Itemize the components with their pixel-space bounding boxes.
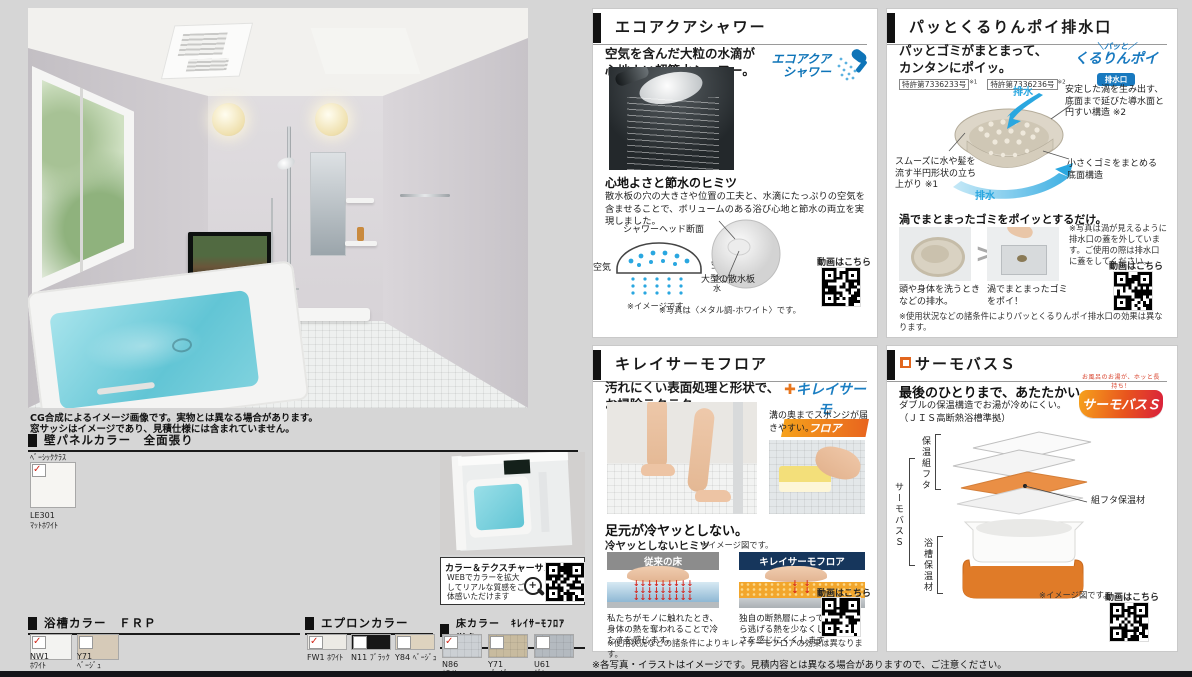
header-bar [887,350,895,380]
towel-bar [400,194,450,197]
conventional-floor-diagram [607,568,719,610]
drain-bottom-label: 排水 [975,187,995,202]
shelf [345,241,377,246]
bath-label: サーモバスＳ [892,482,905,548]
bathroom-photo [28,8,528,408]
drain-step-photo-1 [899,227,971,281]
video-qr-code [1113,271,1153,311]
heat-loss-arrows [621,580,705,601]
header-bar [887,13,895,43]
feet-photo [607,402,757,514]
warm-title: 足元が冷ヤッとしない。 [605,520,748,539]
card-thermo-bath-s: サーモバスＳ 最後のひとりまで、あたたかい。 ダブルの保温構造でお湯が冷めにくい… [886,345,1178,652]
section-marker [28,434,37,447]
tub-color-header: 浴槽カラー ＦＲＰ [28,615,300,635]
wall-light [315,103,348,136]
selected-check-icon[interactable] [444,636,458,649]
card-kururin-poi-drain: パッとくるりんポイ排水口 パッとゴミがまとまって、カンタンにポイッ。 特許第73… [886,8,1178,338]
section-title: 壁パネルカラー 全面張り [44,432,194,448]
section-title: 浴槽カラー ＦＲＰ [44,615,157,631]
bottom-structure-label: 小さくゴミをまとめる底面構造 [1067,159,1159,182]
swatch-label: Y84 ﾍﾞｰｼﾞｭ [395,653,437,663]
plate-label: 大型の散水板 [701,275,755,287]
wall-light [212,103,245,136]
lead-text: パッとゴミがまとまって、カンタンにポイッ。 [899,42,1047,76]
card-title: エコアクアシャワー [615,16,767,37]
header-bar [593,13,601,43]
kururin-poi-logo: ＼パッと／ くるりんポイ 排水口 [1073,41,1159,86]
drain-step-photo-2 [987,227,1059,281]
apron-color-header: エプロンカラー [305,615,433,635]
option-badge-icon [900,357,911,368]
header-bar [593,350,601,380]
selected-check-icon[interactable] [309,636,323,649]
swatch-code: LE301 [30,511,55,521]
swatch-Y84[interactable] [395,634,435,650]
ceiling-access-panel [311,28,421,74]
swatch-name: ﾎﾜｲﾄ [30,661,46,671]
swatch-LE301[interactable] [30,462,76,508]
smooth-riser-label: スムーズに水や髪を流す半円形状の立ち上がり ※1 [895,157,977,192]
section-marker [305,617,314,630]
footer-disclaimer: ※各写真・イラストはイメージです。見積内容とは異なる場合がありますので、ご注意く… [592,657,1007,671]
head-section-label: シャワーヘッド断面 [623,225,704,237]
ceiling-vent-fan [161,23,253,80]
lid-bracket [935,434,941,490]
catalog-page: CG合成によるイメージ画像です。実物とは異なる場合があります。 窓サッシはイメー… [0,0,1192,677]
card-eco-aqua-shower: エコアクアシャワー 空気を含んだ大粒の水滴が心地よい超節水シャワー。 エコアクア… [592,8,878,338]
jis-note: （ＪＩＳ高断熱浴槽準拠） [899,413,1011,426]
check-box[interactable] [353,636,367,649]
shelf [346,198,374,203]
card-header: エコアクアシャワー [593,14,867,42]
check-box[interactable] [397,636,411,649]
thermo-bath-logo: お風呂のお湯が、ホッと長持ち！ サーモバスＳ [1079,372,1163,418]
top-view-tub [466,476,532,538]
step-caption-2: 渦でまとまったゴミをポイ！ [987,285,1069,308]
card-title: キレイサーモフロア [615,353,768,374]
shower-head-cross-section-diagram [609,239,709,295]
top-view-tv [504,459,531,474]
texture-sample-qr-code [545,562,585,602]
lid-label: 保温組フタ [919,436,932,491]
card-header: キレイサーモフロア [593,351,867,379]
image-note: ※イメージ図です。 [1039,590,1111,601]
secret-title: 心地よさと節水のヒミツ [605,174,737,191]
swatch-N11[interactable] [351,634,391,650]
swatch-label: FW1 ﾎﾜｲﾄ [307,653,343,663]
check-box[interactable] [490,636,504,649]
double-insulation-diagram [935,426,1105,601]
tub-material-label: 浴槽保温材 [921,538,934,593]
vortex-structure-label: 安定した渦を生み出す、底面まで延びた導水面と円すい構造 ※2 [1065,85,1165,120]
reduced-heat-arrows [783,580,819,594]
patent-numbers: 特許第7336233号※1 特許第7336236号※2 [899,79,1066,90]
bathroom-top-view [440,452,585,555]
swatch-name: ﾏｯﾄﾎﾜｲﾄ [30,521,58,531]
step-caption-1: 頭や身体を洗うときなどの排水。 [899,285,981,308]
image-note: ※イメージ図です。 [701,540,773,551]
texture-sample-box: カラー＆テクスチャーサンプル WEBでカラーを拡大してリアルな質感をご体感いただ… [440,557,585,605]
video-qr-code [821,597,861,637]
swatch-FW1[interactable] [307,634,347,650]
swatch-name: ﾍﾞｰｼﾞｭ [77,661,101,671]
card-kirei-thermo-floor: キレイサーモフロア 汚れにくい表面処理と形状で、お掃除ラクラク。 ✚キレイサーモ… [592,345,878,652]
card-header: パッとくるりんポイ排水口 [887,14,1167,42]
video-qr-code [821,267,861,307]
selected-check-icon[interactable] [32,464,46,477]
sponge-note: 溝の奥までスポンジが届きやすい。 [769,410,869,436]
bath-bracket [909,458,915,566]
sub-text: ダブルの保温構造でお湯が冷めにくい。 [899,400,1066,413]
air-label-left: 空気 [593,263,611,275]
swatch-N86[interactable] [442,634,482,658]
wall-panel-color-header: 壁パネルカラー 全面張り [28,432,578,452]
selected-check-icon[interactable] [32,636,46,649]
counter-shelf [288,308,370,321]
magnifier-icon: + [523,576,545,598]
eco-aqua-logo: エコアクアシャワー [771,49,869,83]
lid-material-label: 組フタ保温材 [1091,496,1145,508]
swatch-U61[interactable] [534,634,574,658]
footer-bar [0,671,1192,677]
shower-spray-icon [835,49,869,83]
check-box[interactable] [536,636,550,649]
video-qr-code [1109,602,1149,642]
section-title: エプロンカラー [321,615,409,631]
swatch-Y71-floor[interactable] [488,634,528,658]
texture-sample-body: WEBでカラーを拡大してリアルな質感をご体感いただけます [447,573,525,602]
section-marker [28,617,37,630]
lead-text: 最後のひとりまで、あたたかい。 [899,382,1093,401]
check-box[interactable] [79,636,93,649]
shower-photo [609,67,734,170]
condition-note: ※使用状況などの諸条件によりパッとくるりんポイ排水口の効果は異なります。 [899,311,1165,333]
shampoo-bottle [357,227,364,241]
tub-material-bracket [937,536,943,594]
card-title: サーモバスＳ [915,353,1017,374]
swatch-label: N11 ﾌﾞﾗｯｸ [351,653,390,663]
card-title: パッとくるりんポイ排水口 [909,16,1112,37]
photo-note: ※写真は〈メタル調-ホワイト〉です。 [659,305,801,316]
secret-label: 冷ヤッとしないヒミツ [605,538,710,553]
mirror [310,152,346,256]
sponge-photo [769,440,865,514]
